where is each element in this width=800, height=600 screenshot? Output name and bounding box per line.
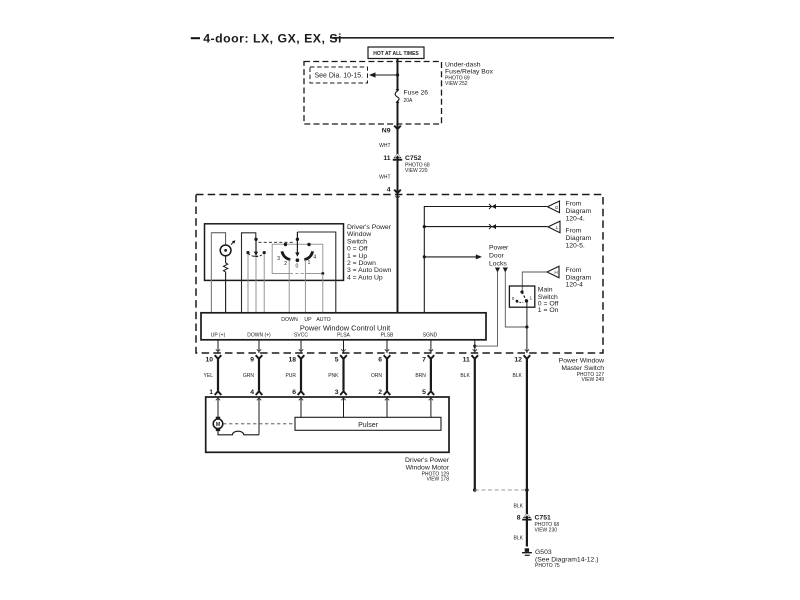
svg-text:10: 10 (205, 357, 213, 364)
svg-text:BRN: BRN (415, 373, 426, 379)
svg-text:12: 12 (514, 357, 522, 364)
svg-text:1 = On: 1 = On (538, 307, 559, 314)
svg-text:120-5.: 120-5. (566, 242, 585, 249)
svg-text:YEL: YEL (204, 373, 214, 379)
svg-text:5: 5 (335, 357, 339, 364)
svg-text:120-4: 120-4 (566, 282, 584, 289)
svg-text:Power Window Control Unit: Power Window Control Unit (300, 324, 390, 333)
svg-text:H: H (554, 270, 557, 275)
svg-text:PLSA: PLSA (337, 332, 350, 338)
svg-text:N9: N9 (382, 128, 391, 135)
svg-text:Master Switch: Master Switch (561, 365, 604, 372)
svg-text:0: 0 (296, 263, 299, 269)
svg-text:4: 4 (387, 187, 391, 194)
svg-text:Driver's Power: Driver's Power (347, 224, 392, 231)
svg-text:11: 11 (383, 155, 390, 162)
svg-text:6: 6 (378, 357, 382, 364)
svg-text:VIEW 178: VIEW 178 (426, 477, 449, 483)
svg-text:VIEW 252: VIEW 252 (445, 81, 468, 87)
svg-text:Window Motor: Window Motor (406, 464, 450, 471)
svg-text:5: 5 (422, 389, 426, 396)
svg-text:Door: Door (489, 252, 504, 259)
svg-text:UP: UP (304, 317, 312, 323)
svg-text:1 = Up: 1 = Up (347, 253, 367, 260)
svg-text:Locks: Locks (489, 260, 507, 267)
svg-text:4: 4 (313, 254, 316, 260)
svg-text:PUR: PUR (285, 373, 296, 379)
svg-text:M: M (216, 422, 220, 428)
svg-text:Main: Main (538, 287, 553, 294)
svg-text:18: 18 (288, 357, 296, 364)
svg-text:SVCC: SVCC (294, 332, 308, 338)
svg-text:Pulser: Pulser (358, 422, 379, 429)
svg-text:SGND: SGND (423, 332, 438, 338)
svg-text:Power: Power (489, 244, 509, 251)
svg-text:3: 3 (277, 256, 280, 262)
svg-text:0 = Off: 0 = Off (347, 246, 368, 253)
svg-text:1: 1 (530, 296, 533, 301)
svg-text:BLK: BLK (460, 373, 470, 379)
svg-text:4: 4 (250, 389, 254, 396)
svg-text:Under-dash: Under-dash (445, 62, 481, 69)
svg-text:HOT AT ALL TIMES: HOT AT ALL TIMES (373, 51, 419, 57)
svg-text:PNK: PNK (328, 373, 339, 379)
svg-text:ORN: ORN (371, 373, 383, 379)
svg-text:G503: G503 (535, 549, 552, 556)
svg-text:AUTO: AUTO (316, 317, 330, 323)
svg-text:BLK: BLK (514, 504, 524, 510)
svg-text:4 = Auto Up: 4 = Auto Up (347, 274, 383, 281)
svg-text:DOWN: DOWN (281, 317, 298, 323)
svg-text:120-4.: 120-4. (566, 215, 585, 222)
svg-text:UP (+): UP (+) (211, 332, 226, 338)
svg-text:C752: C752 (405, 155, 421, 162)
svg-text:Power Window: Power Window (559, 358, 604, 365)
svg-text:PHOTO 75: PHOTO 75 (535, 563, 560, 569)
svg-text:2: 2 (378, 389, 382, 396)
svg-text:BLK: BLK (512, 373, 522, 379)
svg-text:PLSB: PLSB (381, 332, 394, 338)
svg-text:GRN: GRN (243, 373, 255, 379)
svg-text:2: 2 (284, 261, 287, 267)
svg-text:From: From (566, 228, 582, 235)
svg-text:G: G (555, 205, 559, 210)
svg-text:Fuse 26: Fuse 26 (404, 90, 429, 97)
svg-text:4-door: LX, GX, EX, Si: 4-door: LX, GX, EX, Si (203, 31, 342, 45)
svg-text:BLK: BLK (514, 536, 524, 542)
svg-text:0: 0 (512, 296, 515, 301)
svg-text:1: 1 (209, 389, 213, 396)
svg-text:From: From (566, 201, 582, 208)
svg-text:Window: Window (347, 231, 371, 238)
svg-text:DOWN (+): DOWN (+) (247, 332, 271, 338)
svg-text:C751: C751 (535, 515, 551, 522)
svg-text:2 = Down: 2 = Down (347, 260, 376, 267)
svg-text:WHT: WHT (379, 175, 390, 181)
svg-text:Driver's Power: Driver's Power (405, 457, 450, 464)
svg-text:1: 1 (308, 260, 311, 266)
svg-text:7: 7 (422, 357, 426, 364)
svg-text:See Dia. 10-15.: See Dia. 10-15. (314, 73, 363, 80)
svg-text:Fuse/Relay Box: Fuse/Relay Box (445, 69, 494, 76)
svg-text:3: 3 (335, 389, 339, 396)
svg-text:Switch: Switch (347, 238, 367, 245)
svg-text:9: 9 (250, 357, 254, 364)
svg-text:Diagram: Diagram (566, 208, 592, 215)
svg-text:Diagram: Diagram (566, 274, 592, 281)
svg-text:3 = Auto Down: 3 = Auto Down (347, 267, 392, 274)
svg-text:20A: 20A (404, 98, 414, 104)
svg-text:WHT: WHT (379, 143, 390, 149)
svg-text:6: 6 (292, 389, 296, 396)
svg-text:11: 11 (463, 357, 470, 364)
svg-text:8: 8 (517, 515, 521, 522)
svg-text:L: L (556, 225, 559, 230)
svg-text:VIEW 230: VIEW 230 (535, 527, 558, 533)
svg-text:Diagram: Diagram (566, 235, 592, 242)
svg-text:VIEW 220: VIEW 220 (405, 168, 428, 174)
svg-text:From: From (566, 267, 582, 274)
svg-text:VIEW 249: VIEW 249 (581, 377, 604, 383)
